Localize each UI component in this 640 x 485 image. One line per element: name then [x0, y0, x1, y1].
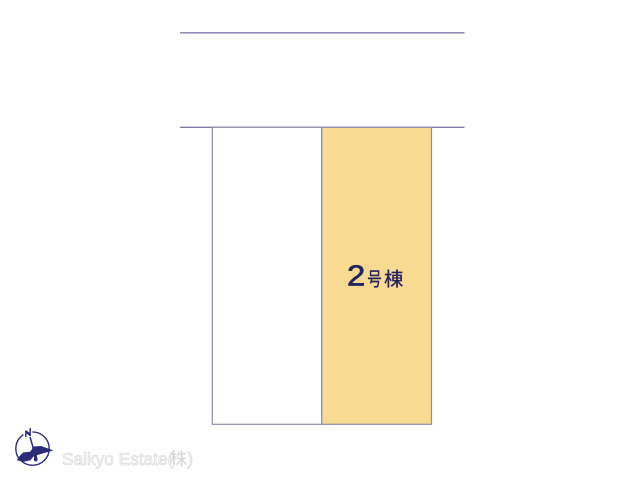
svg-text:Saikyo Estate(: Saikyo Estate( [62, 449, 174, 469]
svg-text:): ) [187, 449, 193, 469]
svg-text:2: 2 [347, 260, 365, 292]
